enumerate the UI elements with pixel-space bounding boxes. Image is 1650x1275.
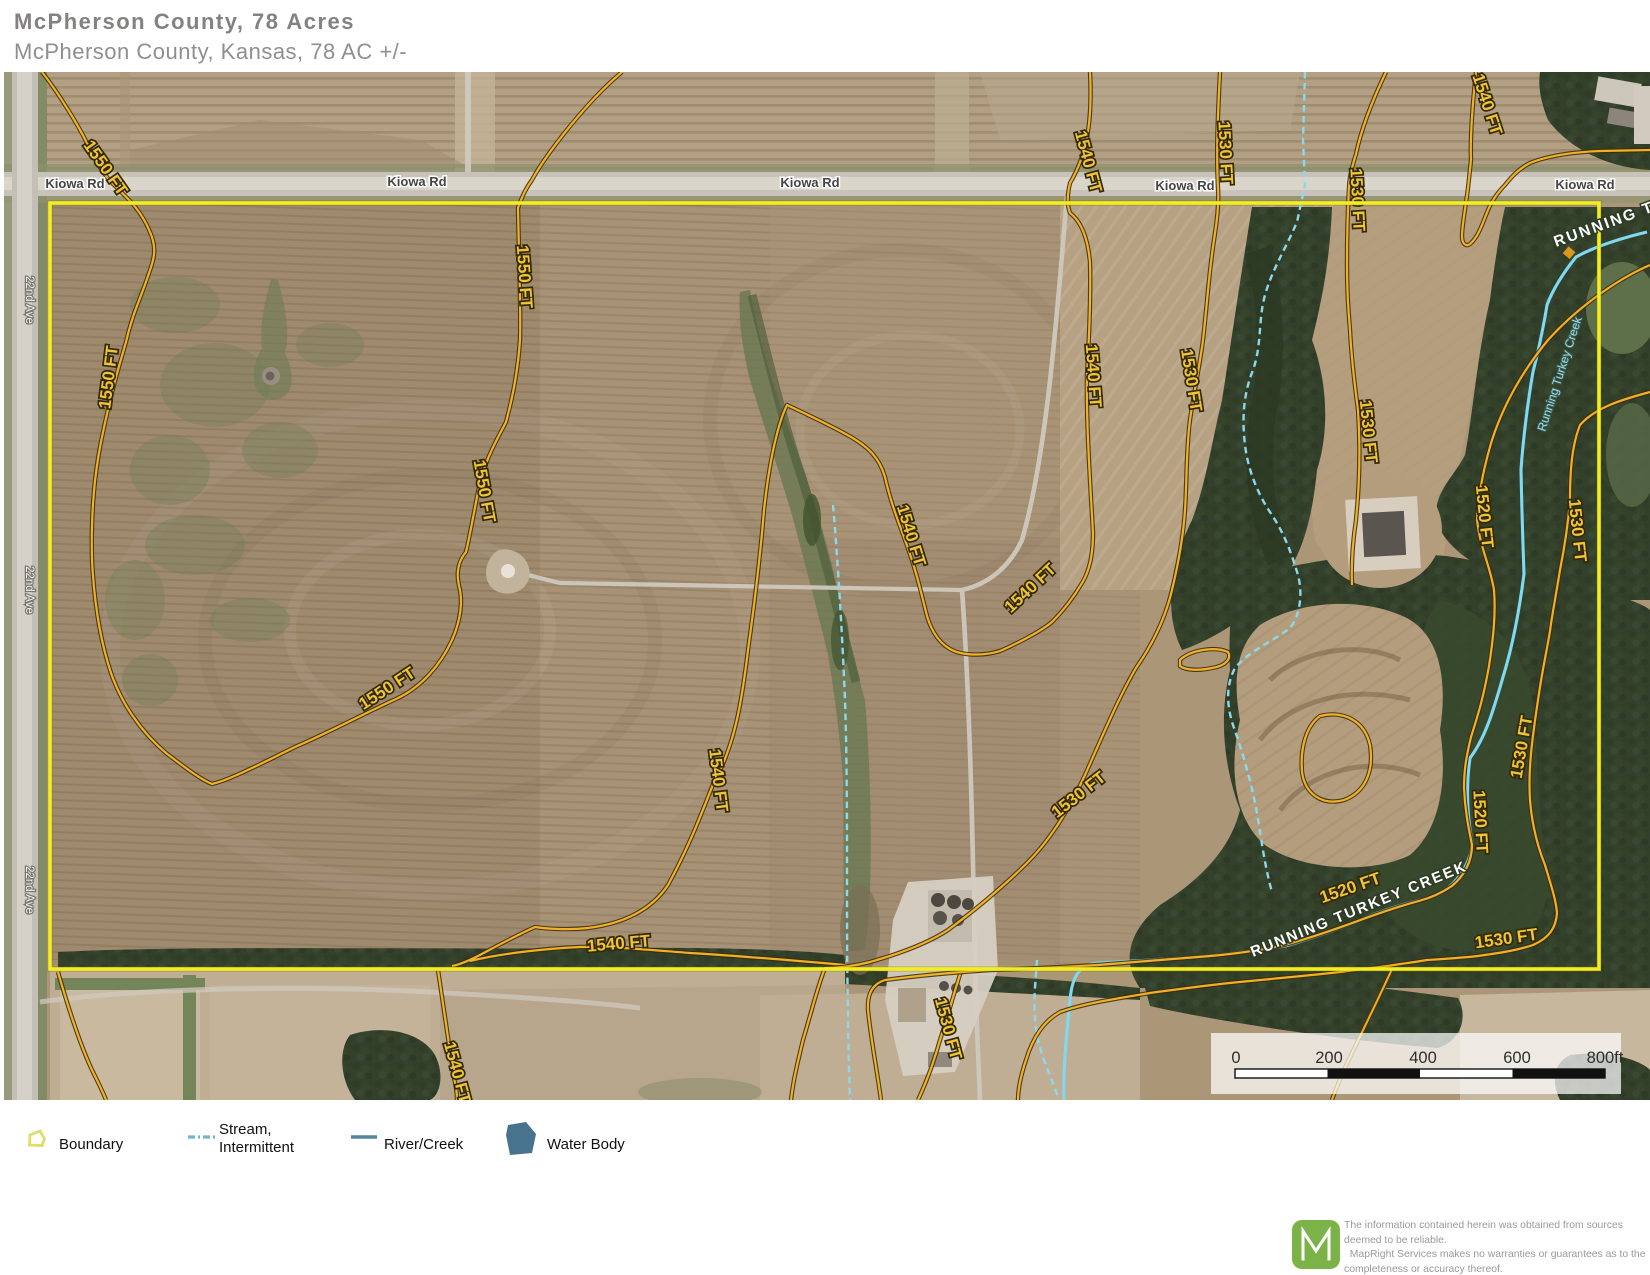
svg-text:0: 0 — [1231, 1049, 1240, 1067]
svg-text:1530 FT: 1530 FT — [1214, 121, 1236, 186]
svg-text:Kiowa Rd: Kiowa Rd — [1155, 178, 1214, 193]
svg-text:1530 FT: 1530 FT — [1346, 168, 1368, 233]
svg-text:22nd Ave: 22nd Ave — [23, 566, 35, 614]
svg-text:22nd Ave: 22nd Ave — [23, 276, 35, 324]
svg-text:600: 600 — [1503, 1049, 1531, 1067]
svg-text:Kiowa Rd: Kiowa Rd — [1555, 177, 1614, 192]
svg-text:800ft: 800ft — [1587, 1049, 1624, 1067]
svg-text:Kiowa Rd: Kiowa Rd — [780, 175, 839, 190]
svg-text:Kiowa Rd: Kiowa Rd — [45, 176, 104, 191]
svg-text:200: 200 — [1315, 1049, 1343, 1067]
svg-text:22nd Ave: 22nd Ave — [23, 866, 35, 914]
svg-text:Kiowa Rd: Kiowa Rd — [387, 174, 446, 189]
svg-text:1520 FT: 1520 FT — [1469, 790, 1491, 855]
svg-text:400: 400 — [1409, 1049, 1437, 1067]
